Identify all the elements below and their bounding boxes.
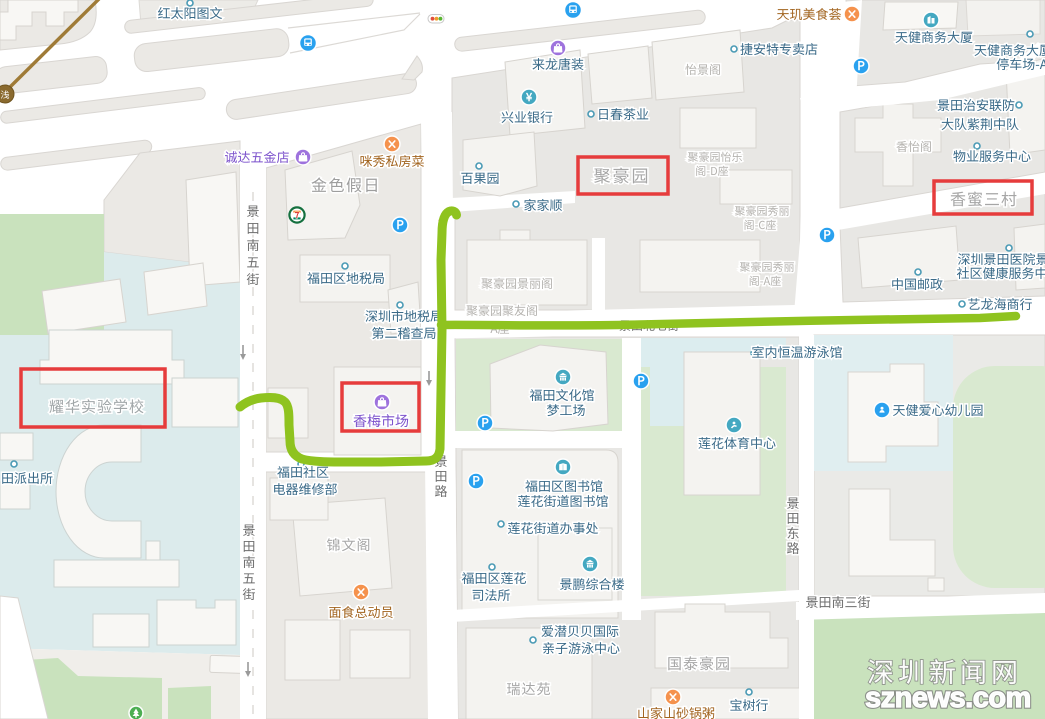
svg-text:兴业银行: 兴业银行 <box>501 107 553 126</box>
svg-text:景田南三街: 景田南三街 <box>805 592 870 611</box>
svg-text:天玑美食荟: 天玑美食荟 <box>776 4 841 23</box>
svg-text:亲子游泳中心: 亲子游泳中心 <box>542 638 620 657</box>
svg-text:怡景阁: 怡景阁 <box>685 61 721 78</box>
svg-text:宝树行: 宝树行 <box>729 695 768 714</box>
svg-text:浅: 浅 <box>0 88 9 101</box>
svg-text:阁-C座: 阁-C座 <box>744 217 777 233</box>
svg-text:景鹏综合楼: 景鹏综合楼 <box>559 574 624 593</box>
svg-text:日春茶业: 日春茶业 <box>597 104 649 123</box>
svg-text:香怡阁: 香怡阁 <box>896 138 932 155</box>
svg-text:来龙唐装: 来龙唐装 <box>532 54 584 73</box>
svg-text:香梅市场: 香梅市场 <box>353 411 409 431</box>
svg-text:sznews.com: sznews.com <box>865 674 1031 716</box>
svg-text:P: P <box>481 414 489 431</box>
svg-text:捷安特专卖店: 捷安特专卖店 <box>740 39 818 58</box>
svg-text:阁-D座: 阁-D座 <box>695 163 728 179</box>
svg-text:耀华实验学校: 耀华实验学校 <box>49 396 145 417</box>
svg-text:诚达五金店: 诚达五金店 <box>224 147 289 166</box>
svg-text:天健商务大厦: 天健商务大厦 <box>895 27 973 46</box>
svg-text:室内恒温游泳馆: 室内恒温游泳馆 <box>751 342 842 361</box>
svg-text:P: P <box>823 226 831 243</box>
svg-text:锦文阁: 锦文阁 <box>327 535 372 555</box>
svg-text:街: 街 <box>246 269 259 288</box>
svg-text:P: P <box>396 216 404 233</box>
svg-text:停车场-A: 停车场-A <box>996 54 1045 73</box>
svg-text:7: 7 <box>295 210 300 221</box>
svg-text:阁-A座: 阁-A座 <box>749 273 782 289</box>
svg-text:山家山砂锅粥: 山家山砂锅粥 <box>637 703 715 719</box>
svg-text:国泰豪园: 国泰豪园 <box>667 653 731 674</box>
svg-text:社区健康服务中: 社区健康服务中 <box>956 263 1045 282</box>
svg-text:第二稽查局: 第二稽查局 <box>371 323 436 342</box>
svg-text:¥: ¥ <box>525 89 533 105</box>
svg-text:中国邮政: 中国邮政 <box>891 274 943 293</box>
svg-text:P: P <box>472 472 480 489</box>
svg-text:聚豪园景丽阁: 聚豪园景丽阁 <box>481 275 553 292</box>
svg-text:梦工场: 梦工场 <box>546 400 585 419</box>
svg-text:聚豪园: 聚豪园 <box>594 162 651 187</box>
svg-text:大队紫荆中队: 大队紫荆中队 <box>941 114 1019 133</box>
svg-text:福田区地税局: 福田区地税局 <box>307 268 385 287</box>
svg-text:家家顺: 家家顺 <box>523 195 562 214</box>
svg-text:物业服务中心: 物业服务中心 <box>953 146 1031 165</box>
svg-text:香蜜三村: 香蜜三村 <box>950 186 1018 210</box>
svg-text:莲花街道图书馆: 莲花街道图书馆 <box>517 491 608 510</box>
svg-text:P: P <box>637 372 645 389</box>
svg-text:艺龙海商行: 艺龙海商行 <box>967 294 1032 313</box>
svg-text:路: 路 <box>786 538 799 557</box>
svg-text:田派出所: 田派出所 <box>1 468 53 487</box>
svg-text:聚豪园聚友阁: 聚豪园聚友阁 <box>466 302 538 319</box>
svg-text:莲花体育中心: 莲花体育中心 <box>698 433 776 452</box>
svg-text:莲花街道办事处: 莲花街道办事处 <box>507 518 598 537</box>
svg-text:瑞达苑: 瑞达苑 <box>507 679 552 699</box>
svg-text:P: P <box>857 57 865 74</box>
svg-text:面食总动员: 面食总动员 <box>328 602 393 621</box>
svg-text:咪秀私房菜: 咪秀私房菜 <box>359 151 424 170</box>
svg-text:金色假日: 金色假日 <box>311 172 381 196</box>
svg-text:百果园: 百果园 <box>460 168 499 187</box>
svg-text:街: 街 <box>242 584 255 603</box>
svg-text:景田治安联防: 景田治安联防 <box>937 95 1015 114</box>
svg-text:司法所: 司法所 <box>471 585 510 604</box>
svg-text:路: 路 <box>434 481 447 500</box>
svg-text:天健爱心幼儿园: 天健爱心幼儿园 <box>892 400 983 419</box>
svg-text:电器维修部: 电器维修部 <box>272 479 337 498</box>
